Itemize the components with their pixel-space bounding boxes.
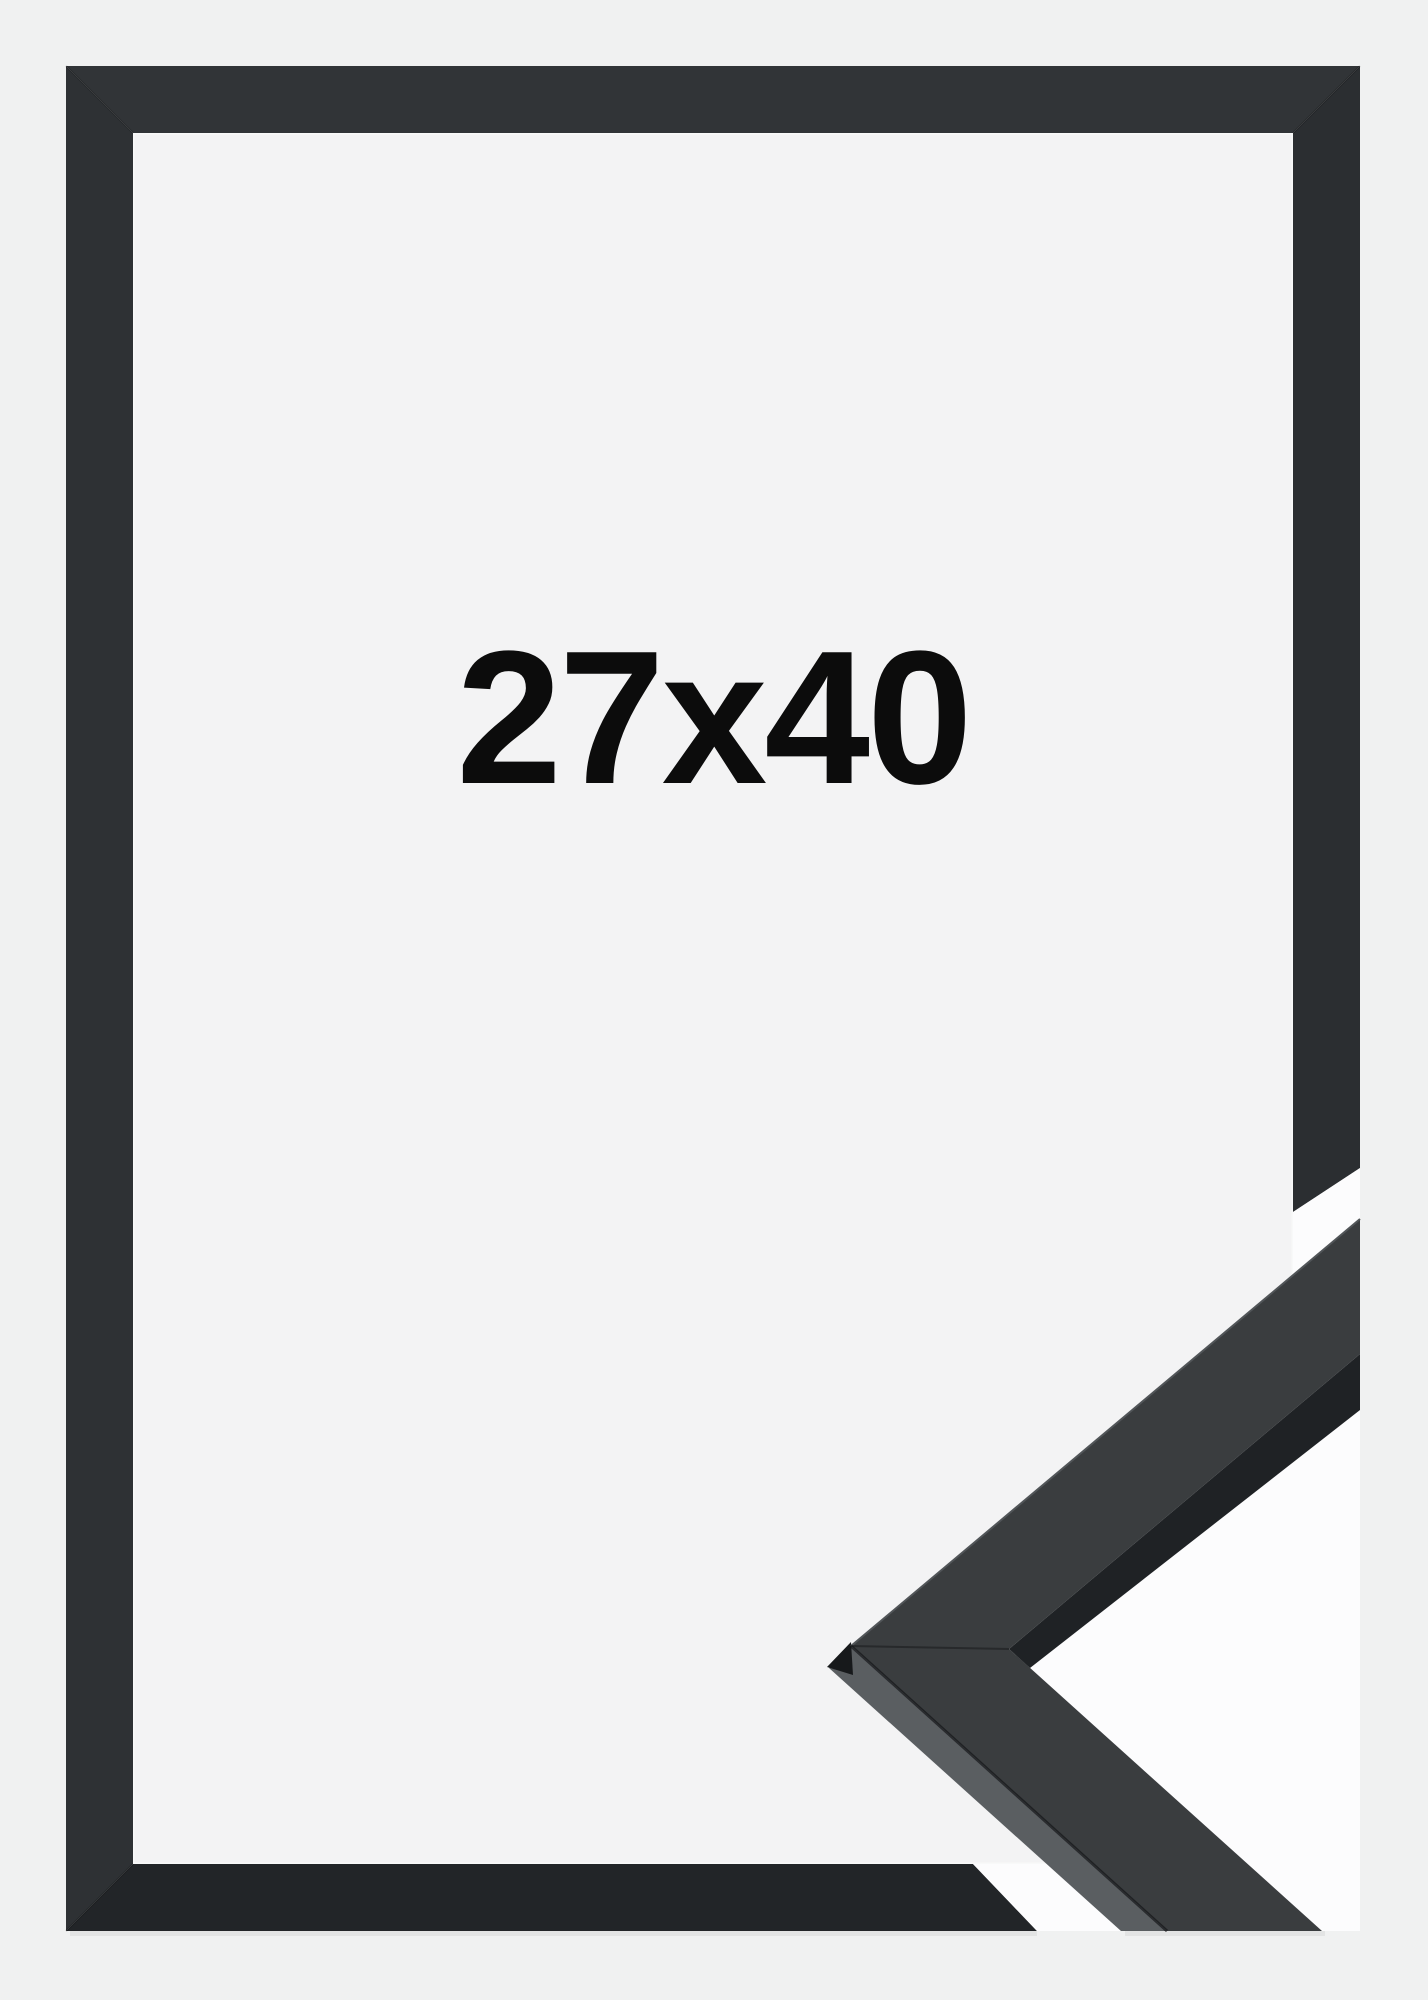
frame-left-rail [66,66,133,1931]
product-photo: 27x40 [0,0,1428,2000]
frame-top-rail [66,66,1360,133]
size-label: 27x40 [66,623,1360,833]
frame-illustration [0,0,1428,2000]
frame-bottom-rail [66,1864,1037,1931]
frame-shadow [70,1931,1037,1936]
sample-shadow [1125,1931,1325,1936]
